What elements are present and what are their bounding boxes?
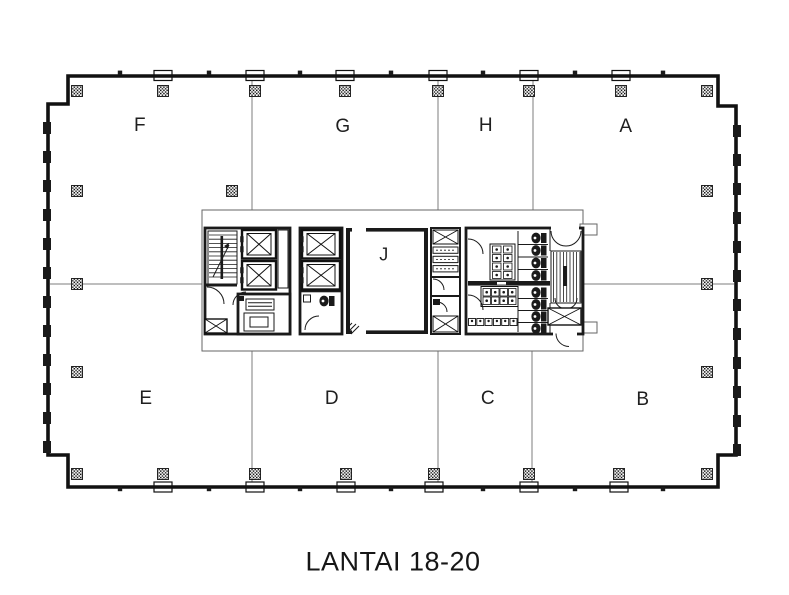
column-marker	[702, 367, 713, 378]
door-opening	[551, 226, 579, 231]
column-marker	[250, 469, 261, 480]
mullion-tick	[43, 354, 51, 366]
sink-drain	[511, 291, 514, 294]
facade-dot	[118, 487, 122, 491]
column-marker	[341, 469, 352, 480]
sink-drain	[506, 248, 509, 251]
sink-drain	[506, 265, 509, 268]
mullion-tick	[43, 412, 51, 424]
facade-dot	[389, 487, 393, 491]
elevator-door-jamb	[240, 277, 243, 283]
floor-plan-canvas	[0, 0, 789, 595]
mullion-tick	[43, 238, 51, 250]
toilet-icon	[541, 312, 547, 322]
plan-title: LANTAI 18-20	[305, 547, 480, 578]
toilet-icon	[329, 296, 335, 306]
column-marker	[72, 279, 83, 290]
toilet-icon	[534, 291, 537, 294]
mullion-tick	[43, 151, 51, 163]
service-chase	[278, 230, 288, 288]
toilet-icon	[534, 237, 537, 240]
duct-block	[239, 296, 244, 301]
mullion-tick	[43, 267, 51, 279]
sink-drain	[511, 299, 514, 302]
elevator-door-jamb	[300, 246, 303, 252]
urinal-drain	[479, 320, 481, 322]
toilet-icon	[534, 327, 537, 330]
zone-label-d: D	[325, 388, 339, 410]
urinal-drain	[487, 320, 489, 322]
urinal-drain	[471, 320, 473, 322]
mullion-tick	[43, 180, 51, 192]
toilet-icon	[322, 300, 325, 303]
elevator-door-jamb	[240, 267, 243, 273]
mullion-tick	[733, 299, 741, 311]
column-marker	[702, 469, 713, 480]
zone-label-c: C	[481, 388, 495, 410]
mullion-tick	[733, 154, 741, 166]
sink-drain	[502, 291, 505, 294]
floor-plan-page: F G H A E D C B J LANTAI 18-20	[0, 0, 789, 595]
sink-drain	[506, 257, 509, 260]
column-marker	[702, 279, 713, 290]
mullion-tick	[43, 441, 51, 453]
sink-drain	[495, 265, 498, 268]
column-marker	[72, 367, 83, 378]
sink-drain	[485, 291, 488, 294]
stair-handrail	[564, 266, 567, 286]
facade-dot	[389, 71, 393, 75]
toilet-icon	[541, 300, 547, 310]
door-opening	[352, 227, 366, 233]
mullion-tick	[733, 270, 741, 282]
sink-drain	[502, 299, 505, 302]
toilet-icon	[541, 288, 547, 298]
mullion-tick	[733, 328, 741, 340]
column-marker	[340, 86, 351, 97]
toilet-icon	[534, 303, 537, 306]
column-marker	[72, 186, 83, 197]
column-marker	[72, 469, 83, 480]
toilet-icon	[534, 274, 537, 277]
zone-label-g: G	[335, 116, 350, 138]
column-marker	[72, 86, 83, 97]
column-marker	[158, 469, 169, 480]
zone-label-b: B	[636, 389, 649, 411]
urinal-drain	[496, 320, 498, 322]
sink-drain	[494, 291, 497, 294]
column-marker	[616, 86, 627, 97]
column-marker	[702, 86, 713, 97]
mullion-tick	[733, 241, 741, 253]
room-j-wall	[346, 228, 350, 334]
facade-dot	[573, 487, 577, 491]
facade-dot	[573, 71, 577, 75]
toilet-icon	[534, 262, 537, 265]
mullion-tick	[43, 296, 51, 308]
room-j-wall	[424, 228, 428, 334]
toilet-icon	[541, 324, 547, 334]
zone-label-e: E	[139, 388, 152, 410]
elevator-door-jamb	[300, 236, 303, 242]
toilet-icon	[534, 249, 537, 252]
column-marker	[702, 186, 713, 197]
mullion-tick	[733, 125, 741, 137]
toilet-icon	[534, 315, 537, 318]
zone-label-j: J	[379, 245, 389, 266]
column-marker	[429, 469, 440, 480]
mullion-tick	[733, 183, 741, 195]
column-marker	[250, 86, 261, 97]
mullion-tick	[733, 357, 741, 369]
facade-dot	[481, 487, 485, 491]
sink-drain	[495, 257, 498, 260]
facade-dot	[661, 71, 665, 75]
elevator-door-jamb	[240, 246, 243, 252]
zone-label-h: H	[479, 115, 493, 137]
facade-dot	[661, 487, 665, 491]
column-marker	[524, 86, 535, 97]
facade-dot	[298, 487, 302, 491]
sink-drain	[485, 299, 488, 302]
mullion-tick	[733, 212, 741, 224]
mullion-tick	[733, 444, 741, 456]
toilet-icon	[541, 233, 547, 243]
toilet-icon	[541, 246, 547, 256]
mullion-tick	[733, 386, 741, 398]
urinal-drain	[504, 320, 506, 322]
mullion-tick	[43, 383, 51, 395]
elevator-door-jamb	[300, 277, 303, 283]
sink-drain	[506, 274, 509, 277]
toilet-icon	[541, 258, 547, 268]
column-marker	[227, 186, 238, 197]
column-marker	[524, 469, 535, 480]
elevator-door-jamb	[240, 236, 243, 242]
mullion-tick	[43, 122, 51, 134]
sink-drain	[495, 274, 498, 277]
zone-label-f: F	[134, 115, 146, 137]
facade-dot	[207, 71, 211, 75]
urinal-drain	[512, 320, 514, 322]
elevator-door-jamb	[300, 267, 303, 273]
facade-dot	[118, 71, 122, 75]
sink-drain	[494, 299, 497, 302]
toilet-icon	[541, 271, 547, 281]
column-marker	[158, 86, 169, 97]
wall-opening	[497, 282, 506, 285]
column-marker	[433, 86, 444, 97]
column-marker	[614, 469, 625, 480]
mullion-tick	[43, 325, 51, 337]
toilet-divider-wall	[468, 281, 550, 286]
sink-drain	[495, 248, 498, 251]
facade-dot	[207, 487, 211, 491]
mullion-tick	[733, 415, 741, 427]
stair-landing-wall	[205, 284, 237, 287]
facade-dot	[481, 71, 485, 75]
facade-dot	[298, 71, 302, 75]
mullion-tick	[43, 209, 51, 221]
zone-label-a: A	[619, 116, 632, 138]
